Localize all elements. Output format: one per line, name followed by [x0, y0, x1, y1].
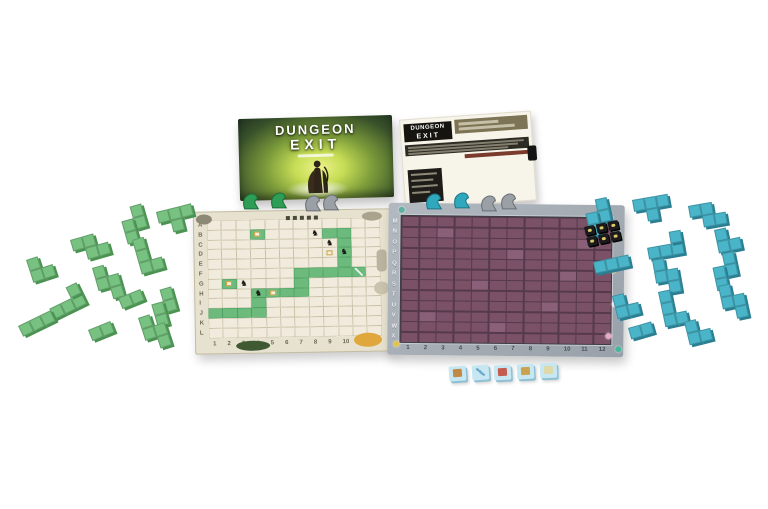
light-board-cell [309, 287, 324, 297]
light-board-cell [324, 306, 339, 316]
light-board-cell [293, 219, 308, 229]
light-board-cell [207, 230, 222, 240]
light-board-cell [221, 220, 236, 230]
dark-board-cell [455, 228, 471, 237]
dark-board-cell [525, 239, 541, 248]
light-board-cell [236, 249, 251, 259]
dark-board-cell [559, 313, 575, 322]
dark-board-cell [454, 322, 470, 331]
dark-board-cell [560, 240, 576, 249]
dark-board-cell [524, 292, 540, 301]
light-board-cell [223, 298, 238, 308]
dark-board-col-label: 6 [494, 346, 497, 352]
light-board-cell [323, 287, 338, 297]
dark-board-cell [507, 281, 523, 290]
dark-board-cell [577, 313, 593, 322]
light-board-cell [279, 239, 294, 249]
dark-board-cell [471, 323, 487, 332]
dark-board-cell [542, 250, 558, 259]
dark-board-cell [454, 312, 470, 321]
dark-board-cell [454, 333, 470, 342]
dark-board-cell [577, 261, 593, 270]
light-board-cell [250, 239, 265, 249]
dark-board-cell [471, 333, 487, 342]
dark-board-cell [436, 322, 452, 331]
light-board-cell [281, 327, 296, 337]
sword-icon [476, 368, 486, 377]
dark-board-cell [437, 270, 453, 279]
dark-board-cell [420, 217, 436, 226]
dark-board-cell [594, 292, 610, 301]
light-board-cell [367, 296, 382, 306]
dark-board-cell [560, 229, 576, 238]
dark-board-col-label: 10 [564, 347, 571, 353]
light-board-cell [337, 267, 352, 277]
dark-board-row-label: O [392, 239, 397, 245]
light-board-cell [366, 237, 381, 247]
light-board-cell [322, 228, 337, 238]
light-board-cell [280, 278, 295, 288]
light-board-cell [236, 220, 251, 230]
dark-board-cell [472, 281, 488, 290]
monster-tile-icon [587, 228, 592, 232]
light-board-cell [265, 268, 280, 278]
teal-meeple [424, 191, 446, 217]
blue-piece-cell [728, 237, 742, 251]
light-board-cell [308, 218, 323, 228]
sheet-header-band [454, 115, 528, 134]
dark-board-cell [472, 260, 488, 269]
board-border-decoration [286, 216, 290, 220]
light-board-cell [280, 297, 295, 307]
dark-board-cell [525, 218, 541, 227]
dark-board-row-label: U [392, 302, 396, 308]
dark-board-col-label: 11 [581, 347, 587, 353]
monster-tile-icon [590, 239, 595, 243]
dark-board-cell [455, 238, 471, 247]
item-tile-potion [494, 365, 512, 381]
green-piece-cell [157, 333, 172, 348]
dark-board-cell [420, 270, 436, 279]
dark-board-cell [472, 312, 488, 321]
light-board-cell [336, 218, 351, 228]
light-board-cell [294, 238, 309, 248]
light-board-cell [279, 219, 294, 229]
light-board-cell [308, 238, 323, 248]
box-logo-line1: DUNGEON [275, 122, 356, 137]
light-board-row-label: F [199, 272, 203, 278]
dark-board-cell [577, 271, 593, 280]
dark-board-cell [560, 261, 576, 270]
dark-board-row-label: T [392, 292, 396, 298]
light-board-cell [310, 326, 325, 336]
light-board-cell [237, 298, 252, 308]
dungeon-board-light: ♞♞♞♞♞ABCDEFGHIJKL123456789101112 [193, 208, 393, 354]
dark-board-cell [525, 260, 541, 269]
dark-board-col-label: 1 [406, 345, 409, 351]
dark-board-col-label: 7 [511, 346, 514, 352]
dark-board-row-label: S [392, 281, 396, 287]
dark-board-row-label: W [391, 323, 397, 329]
light-board-cell [251, 259, 266, 269]
dark-board-cell [437, 291, 453, 300]
dark-board-cell [576, 324, 592, 333]
dark-board-cell [403, 217, 419, 226]
light-board-cell [222, 259, 237, 269]
dark-board-cell [473, 218, 489, 227]
light-board-cell [207, 240, 222, 250]
dark-board-cell [490, 260, 506, 269]
dark-board-cell [542, 302, 558, 311]
light-board-cell [208, 299, 223, 309]
light-board-cell [293, 229, 308, 239]
dark-board-cell [401, 332, 417, 341]
light-board-cell [294, 287, 309, 297]
light-board-cell [338, 287, 353, 297]
dark-board-cell [402, 248, 418, 257]
light-board-cell [352, 306, 367, 316]
dark-board-cell [559, 334, 575, 343]
light-board-cell [223, 328, 238, 338]
dark-board-cell [455, 249, 471, 258]
blue-piece-cell [669, 230, 683, 244]
light-board-cell [309, 316, 324, 326]
blue-piece-cell [699, 328, 714, 343]
light-board-cell [251, 268, 266, 278]
light-board-cell [351, 218, 366, 228]
board-fairy-icon [399, 207, 405, 213]
light-board-cell [223, 318, 238, 328]
light-board-cell [280, 288, 295, 298]
blue-piece-cell [671, 242, 685, 256]
light-board-cell [236, 259, 251, 269]
monster-tile-icon [613, 234, 618, 238]
light-board-cell [337, 238, 352, 248]
dark-board-cell [437, 280, 453, 289]
light-board-cell [365, 227, 380, 237]
light-board-cell [221, 230, 236, 240]
board-border-decoration [376, 249, 386, 271]
item-marker-icon [327, 250, 333, 255]
monster-tile-icon [601, 236, 606, 240]
dark-board-cell [577, 282, 593, 291]
dark-board-cell [472, 239, 488, 248]
photo-canvas: DUNGEON EXIT DUNGEON EXIT [0, 0, 768, 509]
green-piece-cell [41, 264, 56, 279]
light-board-cell [322, 218, 337, 228]
light-board-cell [338, 306, 353, 316]
dark-board-cell [542, 229, 558, 238]
light-board-cell [352, 277, 367, 287]
light-board-cell [208, 279, 223, 289]
light-board-row-label: H [199, 291, 203, 297]
light-board-cell [207, 250, 222, 260]
dark-board-cell [472, 228, 488, 237]
dark-board-cell [542, 292, 558, 301]
light-board-row-label: J [199, 311, 202, 317]
light-board-col-label: 9 [328, 339, 331, 345]
light-board-cell [223, 308, 238, 318]
light-board-cell [309, 267, 324, 277]
dark-board-cell [437, 301, 453, 310]
dark-board-cell [402, 238, 418, 247]
adventurer-silhouette-icon [297, 153, 338, 196]
light-board-cell [353, 316, 368, 326]
light-board-cell [209, 318, 224, 328]
map-icon [544, 366, 553, 374]
light-board-cell [338, 326, 353, 336]
light-board-cell [295, 297, 310, 307]
light-board-cell [367, 306, 382, 316]
light-board-cell [279, 248, 294, 258]
light-board-cell [309, 277, 324, 287]
dark-board-cell [402, 259, 418, 268]
dark-board-cell [402, 301, 418, 310]
monster-icon: ♞ [240, 280, 247, 288]
board-border-decoration [354, 332, 382, 346]
dark-board-cell [455, 259, 471, 268]
light-board-cell [309, 307, 324, 317]
green-meeple [241, 191, 263, 217]
blue-piece-cell [656, 194, 670, 208]
light-board-cell [352, 286, 367, 296]
green-meeple [269, 190, 291, 216]
item-marker-icon [254, 232, 260, 237]
item-tile-compass [517, 364, 535, 380]
sword-icon [355, 268, 363, 276]
item-tile-chest [448, 365, 466, 381]
light-board-col-label: 2 [227, 341, 230, 347]
light-board-cell [266, 278, 281, 288]
dark-board-cell [507, 250, 523, 259]
light-board-cell [280, 307, 295, 317]
board-fairy-icon [605, 333, 611, 339]
light-board-col-label: 8 [314, 339, 317, 345]
light-board-cell [252, 317, 267, 327]
dark-board-cell [472, 302, 488, 311]
light-board-cell [323, 297, 338, 307]
dark-board-cell [489, 312, 505, 321]
dark-board-cell [507, 292, 523, 301]
dark-board-cell [577, 292, 593, 301]
dark-board-cell [419, 322, 435, 331]
light-board-cell [280, 268, 295, 278]
dark-board-cell [454, 291, 470, 300]
board-fairy-icon [393, 341, 399, 347]
dark-board-cell [489, 302, 505, 311]
dark-board-cell [455, 270, 471, 279]
dark-board-cell [541, 323, 557, 332]
item-tile-map [540, 363, 558, 379]
dark-board-cell [437, 238, 453, 247]
light-board-cell [208, 259, 223, 269]
light-board-cell [308, 248, 323, 258]
dark-board-cell [559, 324, 575, 333]
dark-board-cell [559, 271, 575, 280]
light-board-cell [309, 297, 324, 307]
dark-board-cell [454, 301, 470, 310]
dark-board-row-label: P [392, 250, 396, 256]
dark-board-cell [437, 228, 453, 237]
monster-icon: ♞ [341, 248, 348, 256]
dark-board-cell [437, 312, 453, 321]
light-board-cell [237, 318, 252, 328]
light-board-cell [223, 289, 238, 299]
dark-board-cell [490, 270, 506, 279]
compass-icon [521, 367, 530, 375]
light-board-cell [295, 307, 310, 317]
gray-meeple [499, 191, 521, 217]
gray-meeple [479, 193, 501, 219]
blue-piece-cell [735, 304, 749, 318]
light-board-cell [265, 219, 280, 229]
dark-board-cell [489, 291, 505, 300]
blue-piece-cell [627, 302, 642, 317]
light-board-cell [222, 240, 237, 250]
dark-board-cell [594, 303, 610, 312]
light-board-row-label: B [198, 232, 202, 238]
dark-board-cell [507, 260, 523, 269]
blue-piece-cell [714, 212, 728, 226]
light-board-cell [352, 257, 367, 267]
dark-board-cell [542, 239, 558, 248]
board-border-decoration [236, 340, 270, 351]
light-board-cell [251, 298, 266, 308]
light-board-cell [237, 308, 252, 318]
dark-board-cell [438, 217, 454, 226]
dark-board-cell [489, 281, 505, 290]
dark-board-cell [506, 334, 522, 343]
light-board-cell [251, 278, 266, 288]
dark-board-cell [507, 302, 523, 311]
dark-board-cell [420, 228, 436, 237]
chest-icon [453, 369, 463, 378]
dark-board-cell [402, 290, 418, 299]
light-board-cell [279, 229, 294, 239]
game-box-cover: DUNGEON EXIT [238, 115, 394, 201]
light-board-cell [338, 277, 353, 287]
light-board-row-label: I [199, 301, 201, 307]
light-board-cell [295, 327, 310, 337]
light-board-cell [294, 268, 309, 278]
light-board-cell [351, 237, 366, 247]
dark-board-cell [419, 301, 435, 310]
light-board-cell [209, 328, 224, 338]
dark-board-cell [524, 323, 540, 332]
light-board-cell [323, 277, 338, 287]
dark-board-cell [437, 259, 453, 268]
dark-board-cell [524, 313, 540, 322]
light-board-row-label: C [198, 242, 202, 248]
light-board-cell [280, 258, 295, 268]
dark-board-cell [577, 303, 593, 312]
gray-meeple [321, 192, 343, 218]
light-board-cell [208, 289, 223, 299]
light-board-cell [238, 328, 253, 338]
dark-board-row-label: M [393, 218, 398, 224]
box-logo: DUNGEON EXIT [275, 122, 356, 158]
light-board-cell [252, 308, 267, 318]
light-board-cell [250, 219, 265, 229]
light-board-col-label: 10 [343, 339, 350, 345]
light-board-cell [266, 327, 281, 337]
dark-board-row-label: Q [392, 260, 397, 266]
potion-icon [498, 368, 507, 376]
dark-board-cell [402, 269, 418, 278]
light-board-cell [337, 228, 352, 238]
dark-board-cell [560, 250, 576, 259]
dark-board-cell [419, 333, 435, 342]
light-board-cell [351, 228, 366, 238]
light-board-cell [266, 307, 281, 317]
light-board-col-label: 5 [271, 340, 274, 346]
light-board-cell [265, 258, 280, 268]
light-board-col-label: 6 [285, 340, 288, 346]
light-board-cell [265, 239, 280, 249]
dark-board-row-label: N [392, 229, 396, 235]
dark-board-cell [594, 313, 610, 322]
dark-board-cell [419, 280, 435, 289]
dark-board-col-label: 9 [546, 346, 549, 352]
dark-board-col-label: 8 [529, 346, 532, 352]
dark-board-cell [577, 250, 593, 259]
light-board-cell [324, 316, 339, 326]
dark-board-cell [507, 239, 523, 248]
light-board-cell [236, 239, 251, 249]
dark-board-cell [542, 281, 558, 290]
dark-board-cell [543, 218, 559, 227]
dark-board-col-label: 2 [424, 345, 427, 351]
light-board-cell [266, 298, 281, 308]
dark-board-cell [559, 282, 575, 291]
dark-board-cell [508, 218, 524, 227]
dark-board-cell [437, 249, 453, 258]
dark-board-cell [560, 219, 576, 228]
dark-board-cell [420, 259, 436, 268]
dark-board-col-label: 4 [459, 346, 462, 352]
dark-board-cell [594, 324, 610, 333]
sheet-logo: DUNGEON EXIT [403, 121, 452, 142]
blue-piece-cell [640, 321, 655, 336]
dark-board-cell [436, 333, 452, 342]
light-board-cell [351, 247, 366, 257]
teal-meeple [452, 190, 474, 216]
blue-piece-cell [616, 255, 630, 269]
dark-board-cell [472, 270, 488, 279]
dark-board-cell [490, 218, 506, 227]
dark-board-row-label: V [392, 313, 396, 319]
light-board-cell [208, 269, 223, 279]
item-tile-sword [471, 364, 489, 380]
light-board-cell [208, 308, 223, 318]
dark-board-cell [489, 333, 505, 342]
light-board-cell [367, 315, 382, 325]
dark-board-cell [525, 271, 541, 280]
dark-board-cell [490, 228, 506, 237]
green-piece-cell [179, 203, 194, 218]
dark-board-cell [525, 229, 541, 238]
dark-board-row-label: X [391, 334, 395, 340]
dark-board-cell [576, 334, 592, 343]
light-board-row-label: E [199, 262, 203, 268]
dark-board-cell [402, 280, 418, 289]
dark-board-grid [400, 216, 611, 344]
light-board-cell [323, 257, 338, 267]
dark-board-cell [490, 239, 506, 248]
dark-board-cell [489, 323, 505, 332]
dark-board-cell [524, 302, 540, 311]
dark-board-cell [524, 281, 540, 290]
